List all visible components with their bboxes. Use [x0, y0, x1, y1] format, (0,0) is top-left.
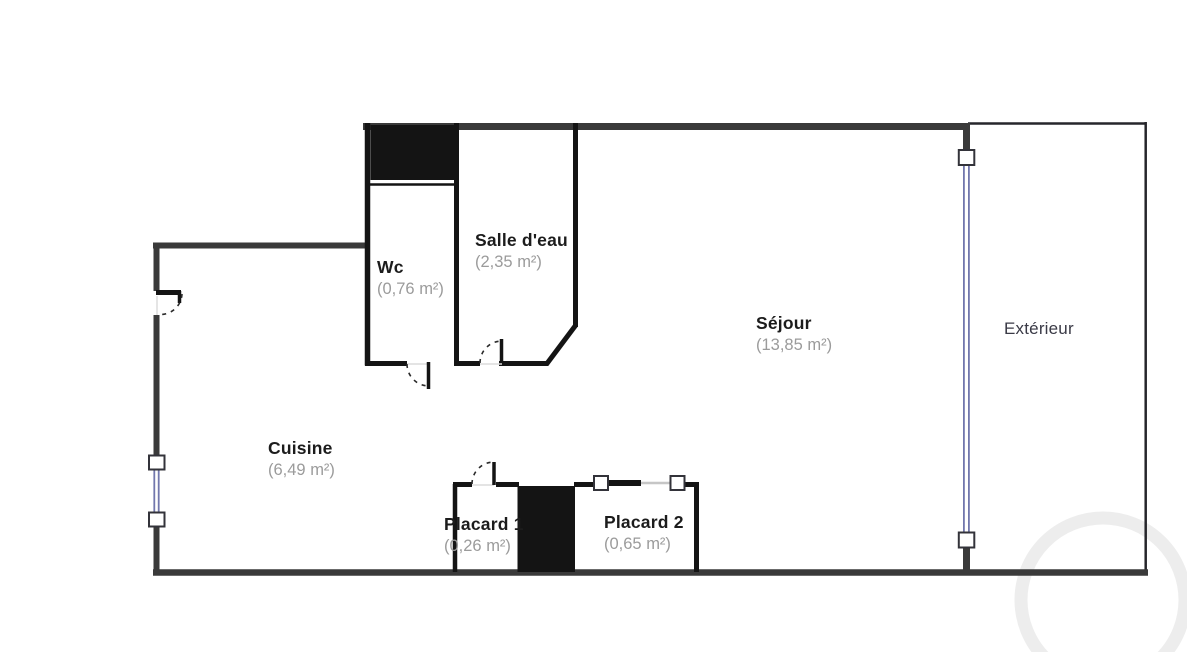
room-label-wc: Wc (0,76 m²) — [377, 256, 444, 299]
room-label-placard-1: Placard 1 (0,26 m²) — [444, 513, 524, 556]
room-label-sejour: Séjour (13,85 m²) — [756, 312, 832, 355]
sliding-door-endpoint — [671, 476, 685, 490]
room-name: Cuisine — [268, 437, 335, 460]
room-area: (2,35 m²) — [475, 252, 568, 272]
room-name: Extérieur — [1004, 317, 1074, 340]
room-area: (13,85 m²) — [756, 335, 832, 355]
room-area: (0,76 m²) — [377, 279, 444, 299]
room-name: Placard 2 — [604, 511, 684, 534]
window-handle — [959, 533, 975, 548]
window-handle — [149, 513, 165, 527]
room-name: Séjour — [756, 312, 832, 335]
room-label-salle-deau: Salle d'eau (2,35 m²) — [475, 229, 568, 272]
room-label-cuisine: Cuisine (6,49 m²) — [268, 437, 335, 480]
exterior-outline — [968, 122, 1146, 572]
sliding-door — [594, 476, 685, 490]
placard-duct-block — [518, 486, 576, 572]
outer-walls — [153, 123, 1148, 573]
window-handle — [149, 456, 165, 470]
wc-duct-block — [371, 125, 456, 180]
floor-plan: Wc (0,76 m²) Salle d'eau (2,35 m²) Séjou… — [0, 0, 1187, 652]
windows — [154, 158, 969, 542]
room-label-placard-2: Placard 2 (0,65 m²) — [604, 511, 684, 554]
window-handle — [959, 150, 975, 165]
room-name: Wc — [377, 256, 444, 279]
room-name: Placard 1 — [444, 513, 524, 536]
room-area: (0,65 m²) — [604, 534, 684, 554]
room-label-exterieur: Extérieur — [1004, 317, 1074, 340]
watermark-circle — [1021, 518, 1185, 652]
room-area: (0,26 m²) — [444, 536, 524, 556]
sliding-door-endpoint — [594, 476, 608, 490]
room-area: (6,49 m²) — [268, 460, 335, 480]
room-name: Salle d'eau — [475, 229, 568, 252]
